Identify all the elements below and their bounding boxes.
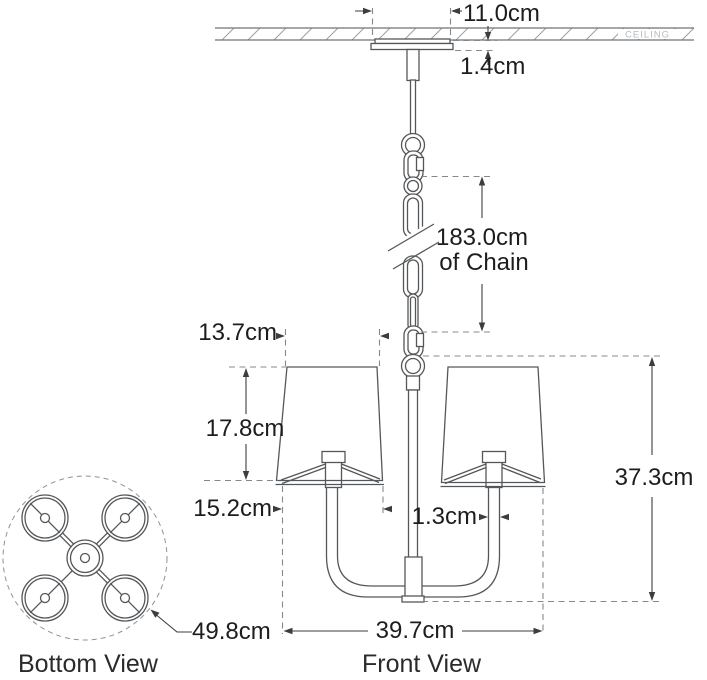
ceiling-label: CEILING [625,30,670,41]
fixture-dimension-diagram: CEILING [0,0,707,680]
fixture-width-label: 39.7cm [376,617,455,644]
arm-diameter-label: 1.3cm [412,503,477,530]
shade-bottom-width-label: 15.2cm [193,495,272,522]
dim-shade-bottom-width: 15.2cm [193,486,392,634]
shade-top-width-label: 13.7cm [198,319,277,346]
chain [402,134,425,378]
canopy-width-label: 11.0cm [463,0,540,27]
fixture-height-label: 37.3cm [615,464,694,491]
canopy [371,39,453,134]
dim-chain-length: 183.0cm of Chain [421,177,529,333]
overall-diameter-label: 49.8cm [192,618,271,645]
dim-canopy-width: 11.0cm [355,0,540,40]
canopy-height-label: 1.4cm [460,53,525,80]
chain-length-label: 183.0cm [436,224,528,251]
dim-shade-height: 17.8cm [204,367,286,481]
ceiling: CEILING [215,28,694,41]
shade-height-label: 17.8cm [206,415,285,442]
front-view-label: Front View [362,650,482,678]
chain-length-suffix-label: of Chain [439,249,528,276]
dim-overall-diameter: 49.8cm [151,610,271,646]
bottom-view-drawing [3,476,167,640]
dim-fixture-height: 37.3cm [422,356,693,602]
fixture-body [281,376,541,602]
bottom-view-label: Bottom View [18,650,159,678]
dim-shade-top-width: 13.7cm [198,319,389,366]
view-labels: Bottom View Front View [18,650,482,678]
